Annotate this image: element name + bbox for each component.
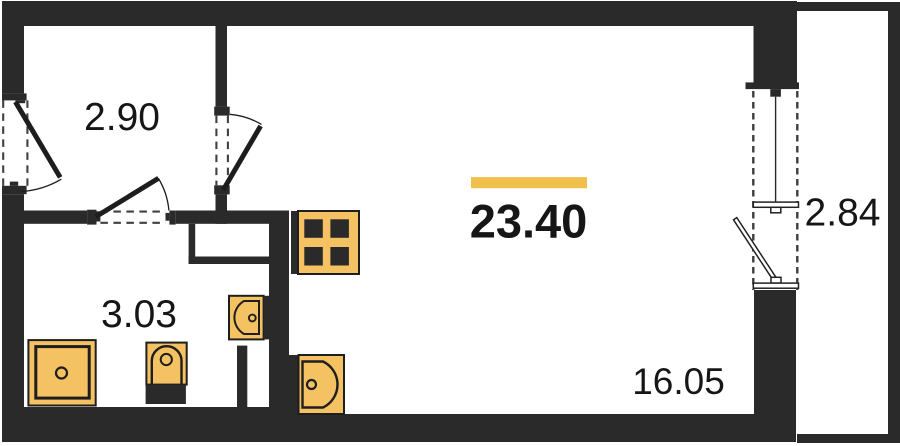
svg-text:3.03: 3.03	[101, 293, 177, 336]
svg-text:2.84: 2.84	[805, 191, 881, 234]
svg-text:16.05: 16.05	[632, 361, 725, 402]
svg-text:2.90: 2.90	[84, 96, 160, 139]
svg-text:23.40: 23.40	[470, 194, 588, 247]
